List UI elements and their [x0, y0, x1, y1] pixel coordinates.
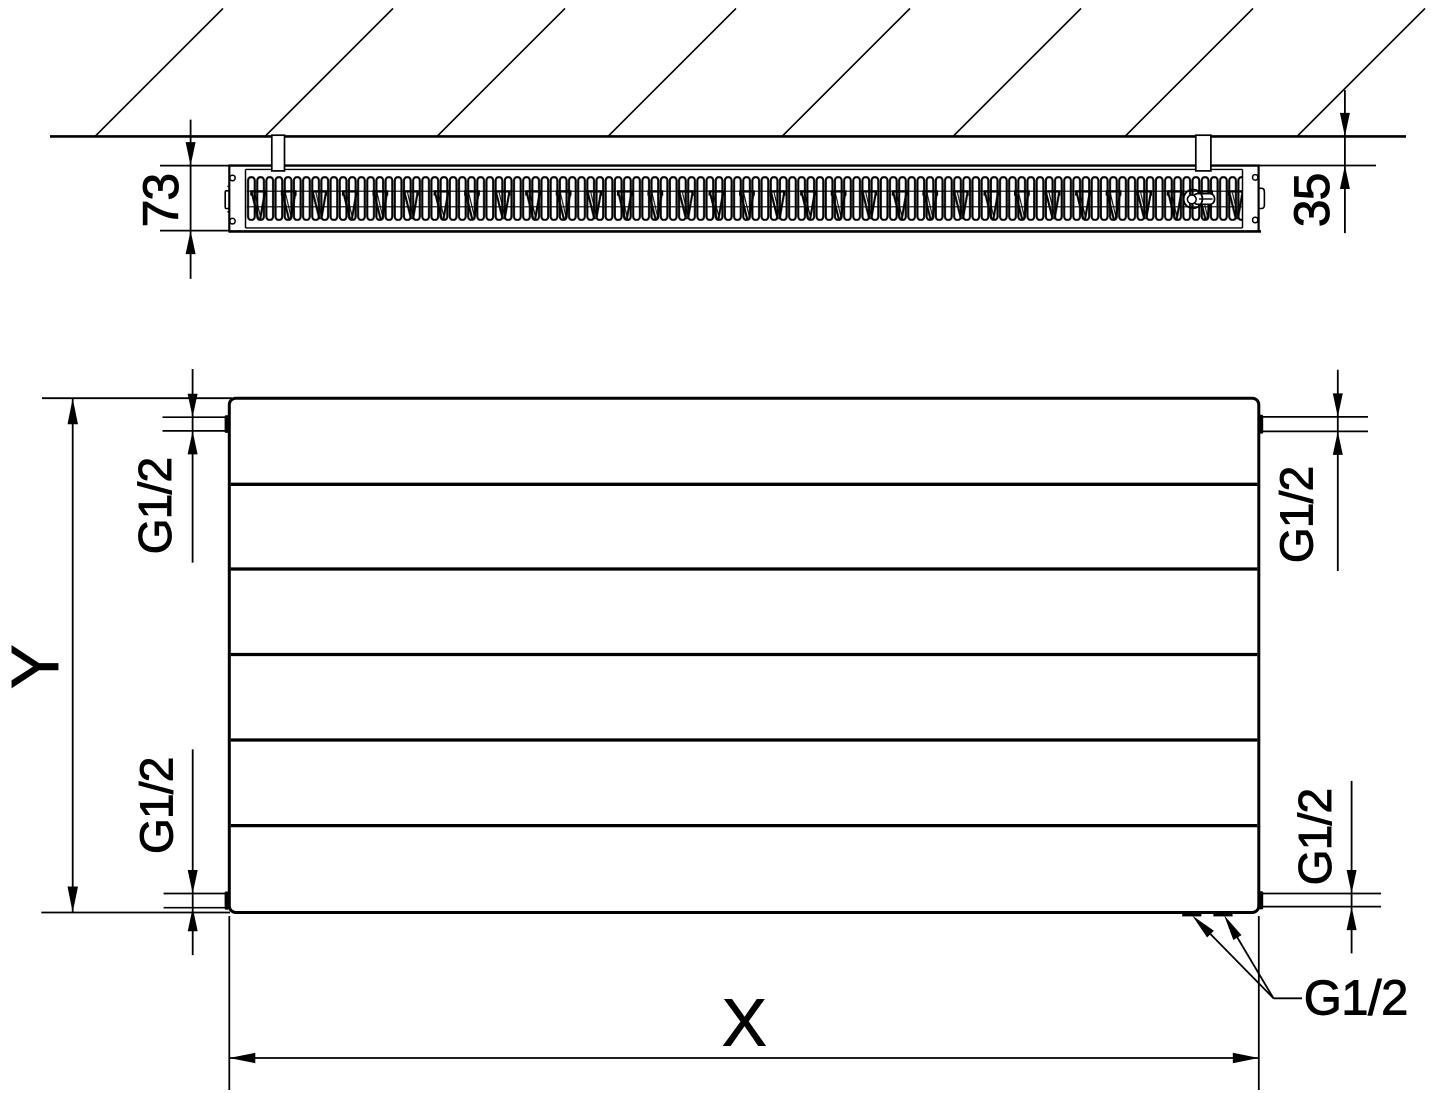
- svg-text:G1/2: G1/2: [129, 458, 181, 555]
- svg-text:73: 73: [133, 174, 189, 228]
- svg-text:G1/2: G1/2: [1304, 972, 1408, 1026]
- svg-text:G1/2: G1/2: [1289, 789, 1341, 886]
- svg-text:G1/2: G1/2: [1271, 467, 1323, 564]
- svg-text:G1/2: G1/2: [131, 757, 183, 854]
- svg-text:35: 35: [1284, 174, 1340, 228]
- svg-text:Y: Y: [0, 644, 73, 689]
- svg-text:X: X: [722, 985, 767, 1060]
